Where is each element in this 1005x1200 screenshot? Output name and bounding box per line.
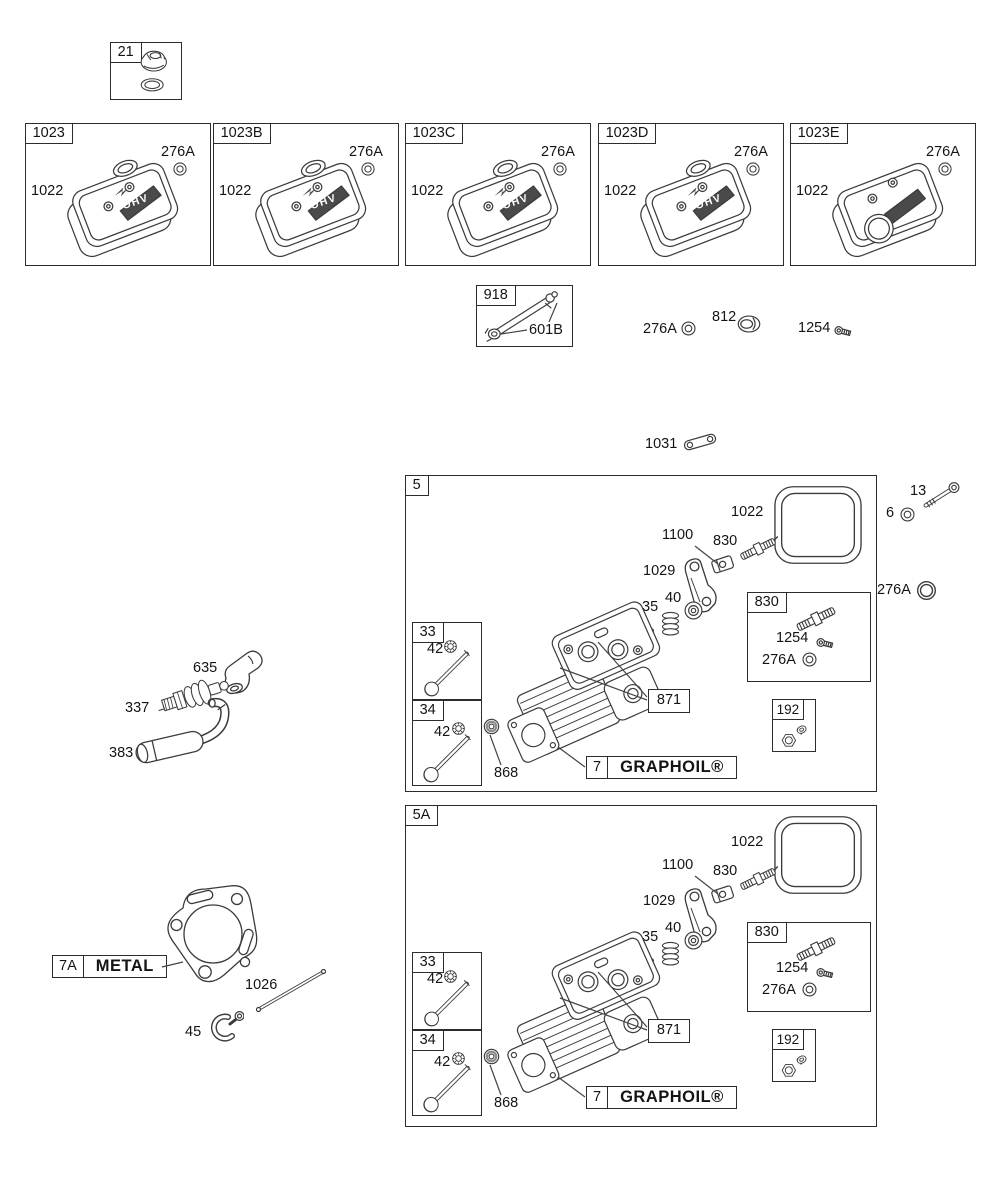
part-label-868[interactable]: 868: [494, 1096, 518, 1111]
part-label-276a[interactable]: 276A: [643, 322, 677, 337]
hook-clamp-icon: [200, 1008, 244, 1048]
valve-icon: [415, 733, 477, 783]
callout-box-33[interactable]: 33: [412, 952, 444, 973]
valve-cover-icon: [54, 150, 182, 262]
valve-seal-icon: [483, 1048, 500, 1065]
breather-tube-icon: [130, 696, 240, 768]
valve-cover-gasket-icon: [769, 811, 867, 899]
callout-ref-7: 7: [587, 757, 608, 778]
graphoil-tag[interactable]: 7 GRAPHOIL®: [586, 1086, 737, 1109]
part-label-276a[interactable]: 276A: [877, 583, 911, 598]
callout-box-33[interactable]: 33: [412, 622, 444, 643]
washer-icon: [899, 506, 916, 523]
group-box-exhaust-valve: 34 42: [412, 1030, 482, 1116]
group-box-stud-kit: 830 1254 276A: [747, 592, 871, 682]
retainer-icon: [683, 600, 704, 621]
group-box-intake-valve: 33 42: [412, 622, 482, 700]
part-label-1100[interactable]: 1100: [662, 858, 693, 873]
retainer-icon: [683, 930, 704, 951]
group-box-nut-kit: 192: [772, 1029, 816, 1082]
callout-box-1023b[interactable]: 1023B: [213, 123, 271, 144]
washer-icon: [680, 320, 697, 337]
graphoil-tag[interactable]: 7 GRAPHOIL®: [586, 756, 737, 779]
part-label-830[interactable]: 830: [713, 534, 737, 549]
valve-icon: [415, 1063, 477, 1113]
part-label-276a[interactable]: 276A: [762, 653, 796, 668]
part-label-1031[interactable]: 1031: [645, 437, 677, 452]
group-box-intake-valve: 33 42: [412, 952, 482, 1030]
valve-cover-icon: [434, 150, 562, 262]
metal-label: METAL: [84, 956, 166, 977]
callout-box-34[interactable]: 34: [412, 1030, 444, 1051]
link-icon: [681, 431, 719, 453]
cylinder-head-icon: [486, 594, 686, 766]
rocker-stud-icon: [736, 532, 780, 566]
push-rod-icon: [250, 964, 330, 1016]
valve-icon: [415, 649, 477, 697]
callout-box-871[interactable]: 871: [648, 1019, 690, 1043]
graphoil-label: GRAPHOIL®: [608, 757, 736, 778]
washer-icon: [801, 981, 818, 998]
callout-ref-7a: 7A: [53, 956, 84, 977]
valve-seal-icon: [483, 718, 500, 735]
group-box-stud-kit: 830 1254 276A: [747, 922, 871, 1012]
screw-icon: [816, 965, 834, 981]
part-label-830[interactable]: 830: [713, 864, 737, 879]
rocker-stud-icon: [736, 862, 780, 896]
part-label-1029[interactable]: 1029: [643, 564, 675, 579]
part-label-1022[interactable]: 1022: [731, 835, 763, 850]
group-box-cap-kit: 21: [110, 42, 182, 100]
part-label-1254[interactable]: 1254: [798, 321, 830, 336]
parts-diagram-page: 21 1023 276A 1022 OHV 1023B 276A 1022 OH…: [0, 0, 1005, 1200]
callout-box-192[interactable]: 192: [772, 699, 805, 720]
cylinder-head-icon: [486, 924, 686, 1096]
nut-clip-icon: [775, 1052, 813, 1078]
group-box-cover-1023c: 1023C 276A 1022 OHV: [405, 123, 591, 266]
callout-box-1023d[interactable]: 1023D: [598, 123, 657, 144]
callout-box-5[interactable]: 5: [405, 475, 429, 496]
group-box-head-5: 5 1022 1100 830 1029 40 35 36 830 1254 2…: [405, 475, 877, 792]
ring-icon: [916, 580, 937, 601]
oil-cap-icon: [127, 45, 179, 97]
part-label-1100[interactable]: 1100: [662, 528, 693, 543]
part-label-1254[interactable]: 1254: [776, 961, 808, 976]
callout-box-192[interactable]: 192: [772, 1029, 805, 1050]
valve-cover-icon: [242, 150, 370, 262]
group-box-cover-1023d: 1023D 276A 1022 OHV: [598, 123, 784, 266]
washer-icon: [801, 651, 818, 668]
callout-box-1023e[interactable]: 1023E: [790, 123, 848, 144]
valve-icon: [415, 979, 477, 1027]
part-label-45[interactable]: 45: [185, 1025, 201, 1040]
callout-box-871[interactable]: 871: [648, 689, 690, 713]
group-box-cover-1023e: 1023E 276A 1022: [790, 123, 976, 266]
part-label-868[interactable]: 868: [494, 766, 518, 781]
part-label-1254[interactable]: 1254: [776, 631, 808, 646]
callout-box-5a[interactable]: 5A: [405, 805, 439, 826]
graphoil-label: GRAPHOIL®: [608, 1087, 736, 1108]
callout-box-1023[interactable]: 1023: [25, 123, 73, 144]
part-label-6[interactable]: 6: [886, 506, 894, 521]
part-label-812[interactable]: 812: [712, 310, 736, 325]
valve-cover-port-icon: [819, 150, 947, 262]
screw-icon: [834, 323, 852, 339]
callout-box-34[interactable]: 34: [412, 700, 444, 721]
valve-cover-gasket-icon: [769, 481, 867, 569]
callout-box-1023c[interactable]: 1023C: [405, 123, 464, 144]
callout-box-830[interactable]: 830: [747, 592, 787, 613]
part-label-276a[interactable]: 276A: [762, 983, 796, 998]
callout-ref-7: 7: [587, 1087, 608, 1108]
group-box-cover-1023: 1023 276A 1022 OHV: [25, 123, 211, 266]
valve-cover-icon: [627, 150, 755, 262]
part-label-601b[interactable]: 601B: [529, 323, 563, 338]
callout-box-830[interactable]: 830: [747, 922, 787, 943]
metal-tag[interactable]: 7A METAL: [52, 955, 167, 978]
group-box-nut-kit: 192: [772, 699, 816, 752]
bolt-icon: [915, 480, 961, 512]
nut-clip-icon: [775, 722, 813, 748]
group-box-cover-1023b: 1023B 276A 1022 OHV: [213, 123, 399, 266]
group-box-exhaust-valve: 34 42: [412, 700, 482, 786]
part-label-1022[interactable]: 1022: [731, 505, 763, 520]
group-box-head-5a: 5A 1022 1100 830 1029 40 35 36 830 1254 …: [405, 805, 877, 1127]
screw-icon: [816, 635, 834, 651]
part-label-1029[interactable]: 1029: [643, 894, 675, 909]
oil-plug-icon: [735, 313, 763, 335]
